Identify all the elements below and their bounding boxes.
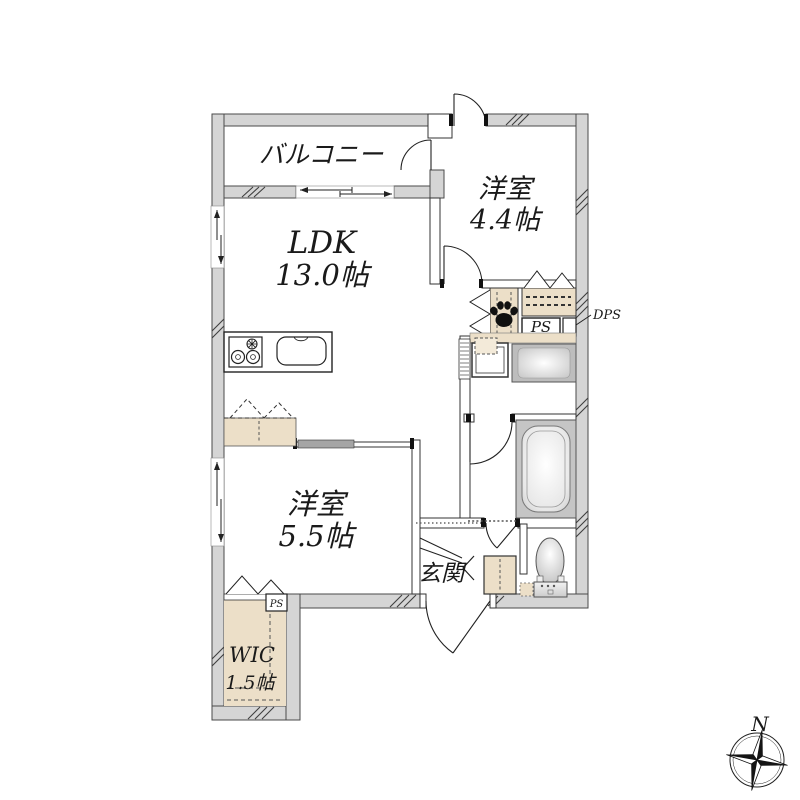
paper-holder <box>520 583 533 596</box>
hanging-closet <box>522 271 576 316</box>
ldk-left-window <box>211 206 224 268</box>
ldk-label: LDK <box>287 225 358 261</box>
ldk-size: 13.0帖 <box>275 258 373 292</box>
bedroom55-closet <box>224 399 296 446</box>
bedroom55-label: 洋室 <box>287 487 349 521</box>
compass-n-label: N <box>750 712 770 736</box>
balcony-sliding-window <box>296 186 394 198</box>
compass-icon: N <box>721 712 793 796</box>
sink-icon <box>277 337 326 365</box>
toilet-hall-door <box>486 523 518 548</box>
wic-label: WIC <box>229 643 275 667</box>
bathtub-icon <box>516 420 576 518</box>
washbasin-icon <box>512 344 576 382</box>
shoe-cabinet <box>484 556 516 594</box>
bedroom55-left-window <box>211 458 224 546</box>
bedroom44-size: 4.4帖 <box>469 205 544 236</box>
dps-label: DPS <box>592 308 621 323</box>
entrance-label: 玄関 <box>418 561 467 587</box>
floor-plan-drawing: PS DPS <box>0 0 800 800</box>
ps-wic-label: PS <box>269 599 284 610</box>
step-chevron <box>463 556 474 580</box>
entry-door <box>426 601 490 653</box>
sliding-partition <box>293 438 414 449</box>
washing-machine-icon <box>472 338 508 377</box>
balcony-partition-door <box>401 140 431 170</box>
balcony-label: バルコニー <box>259 140 385 169</box>
bedroom55-size: 5.5帖 <box>278 519 357 553</box>
paw-closet <box>470 288 519 338</box>
bedroom44-label: 洋室 <box>478 174 536 205</box>
wic-size: 1.5帖 <box>225 672 277 694</box>
kitchen-counter <box>224 332 332 372</box>
bathroom-door <box>470 422 512 464</box>
washroom-sliding-door <box>459 339 470 379</box>
pipe-space-wic: PS <box>266 594 287 611</box>
floor-plan: PS DPS <box>0 0 800 800</box>
stove-icon <box>229 337 262 367</box>
bedroom44-door <box>444 246 482 284</box>
